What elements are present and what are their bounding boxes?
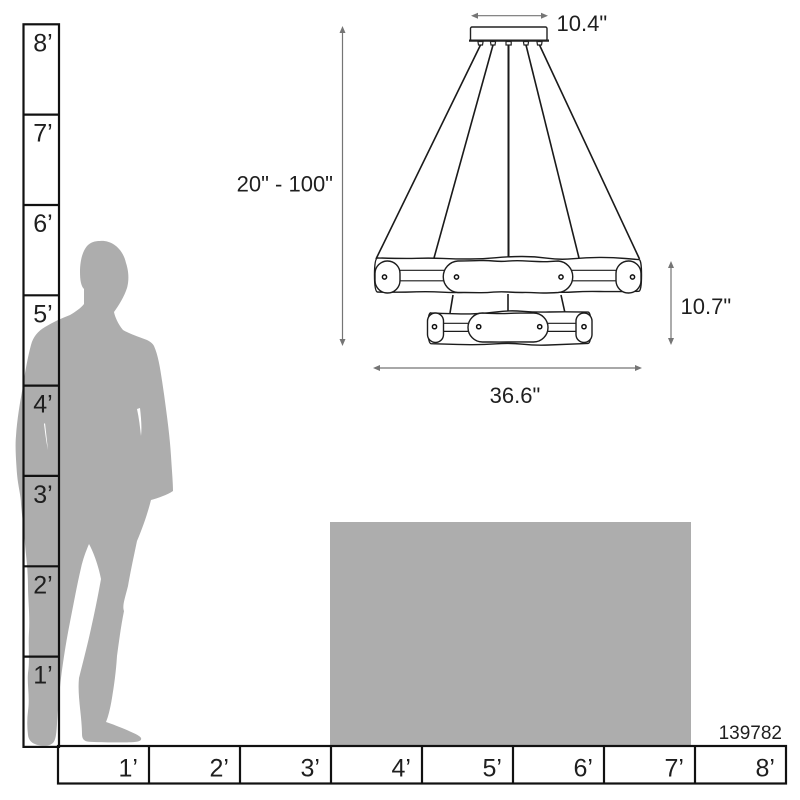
svg-text:20" - 100": 20" - 100" [237, 172, 333, 197]
svg-text:3’: 3’ [301, 755, 320, 783]
svg-text:3’: 3’ [33, 481, 52, 509]
svg-text:2’: 2’ [210, 755, 229, 783]
svg-text:10.7": 10.7" [681, 294, 732, 319]
svg-text:36.6": 36.6" [490, 383, 541, 408]
svg-text:5’: 5’ [483, 755, 502, 783]
svg-text:5’: 5’ [33, 300, 52, 328]
svg-text:1’: 1’ [119, 755, 138, 783]
svg-text:7’: 7’ [33, 120, 52, 148]
svg-text:8’: 8’ [756, 755, 775, 783]
svg-text:6’: 6’ [574, 755, 593, 783]
svg-text:1’: 1’ [33, 662, 52, 690]
svg-text:6’: 6’ [33, 210, 52, 238]
svg-text:8’: 8’ [33, 29, 52, 57]
svg-text:4’: 4’ [392, 755, 411, 783]
svg-text:2’: 2’ [33, 571, 52, 599]
svg-text:10.4": 10.4" [557, 11, 608, 36]
svg-text:7’: 7’ [665, 755, 684, 783]
svg-text:4’: 4’ [33, 391, 52, 419]
svg-text:139782: 139782 [719, 723, 782, 744]
